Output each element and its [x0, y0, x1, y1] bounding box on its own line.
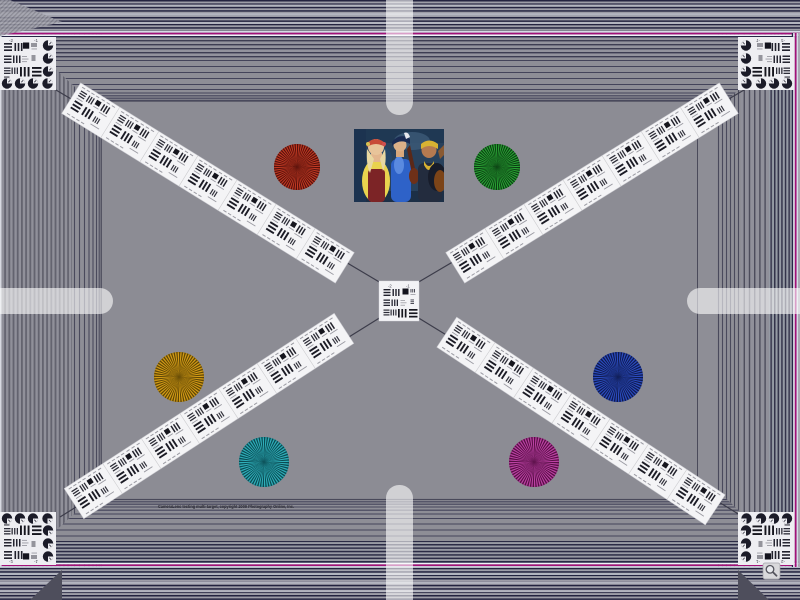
svg-text:-2: -2: [781, 38, 785, 43]
svg-text:-1: -1: [756, 559, 760, 564]
svg-text:-1: -1: [34, 38, 38, 43]
svg-text:-2: -2: [9, 559, 13, 564]
svg-text:-1: -1: [34, 559, 38, 564]
svg-text:-2: -2: [9, 38, 13, 43]
svg-text:CameraLens testing multi-targe: CameraLens testing multi-target, copyrig…: [158, 504, 294, 509]
svg-text:-1: -1: [756, 38, 760, 43]
svg-text:-2: -2: [781, 559, 785, 564]
